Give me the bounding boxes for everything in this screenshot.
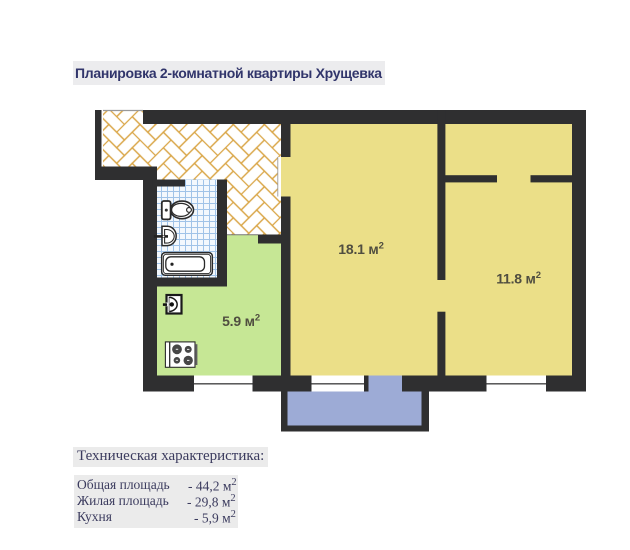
svg-text:5.9 м2: 5.9 м2 — [222, 313, 260, 330]
svg-text:11.8 м2: 11.8 м2 — [496, 270, 541, 287]
svg-text:18.1 м2: 18.1 м2 — [338, 240, 383, 256]
